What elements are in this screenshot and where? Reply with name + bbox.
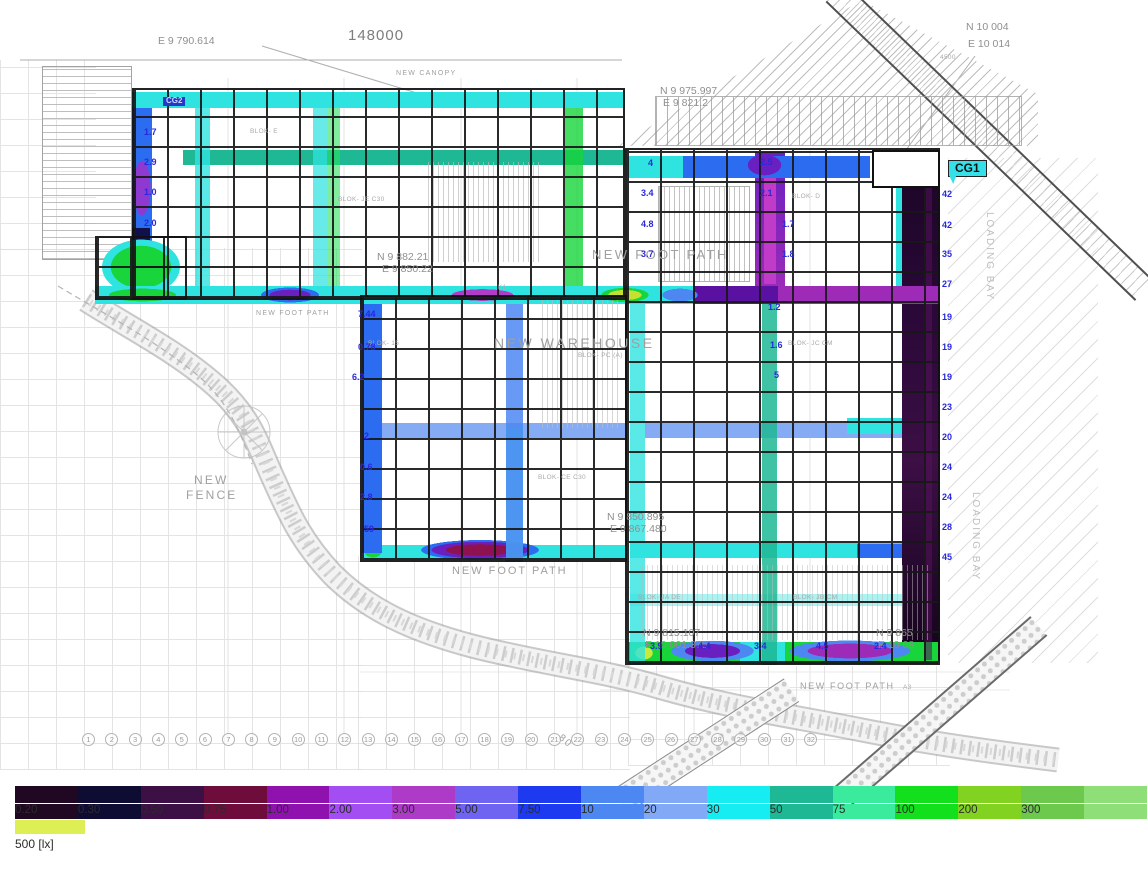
grid-axis-bubble: 17 xyxy=(455,733,468,746)
scale-segment xyxy=(329,786,392,803)
lux-value: 2.5 xyxy=(760,158,773,168)
lux-value: 45 xyxy=(942,553,952,563)
scale-segment xyxy=(770,786,833,803)
lux-value: 4.8 xyxy=(641,220,654,230)
lux-value: 19 xyxy=(942,313,952,323)
coordinate-label: N 9 865 xyxy=(876,628,913,640)
lux-value: 6.2 xyxy=(352,373,365,383)
block-label: BLOK- D xyxy=(792,193,820,200)
scale-segment xyxy=(518,786,581,803)
coordinate-label: E 9 790.614 xyxy=(158,36,215,48)
grid-axis-bubble: 20 xyxy=(525,733,538,746)
tree-symbol xyxy=(218,406,270,458)
loading-bay-label: LOADING BAY xyxy=(970,492,981,581)
scale-tick-label: 20 xyxy=(644,804,707,819)
cg2-badge: CG2 xyxy=(163,97,185,106)
scale-segment xyxy=(267,786,330,803)
area-label: NEW xyxy=(194,474,228,487)
lux-value: 2 xyxy=(364,432,369,442)
scale-segment xyxy=(15,786,78,803)
lux-value: 2.9 xyxy=(144,158,157,168)
scale-tick-label: 2.00 xyxy=(329,804,392,819)
grid-axis-bubble: 23 xyxy=(595,733,608,746)
scale-segment xyxy=(204,786,267,803)
block-label: BLOK- JA DE xyxy=(638,594,681,601)
lux-value: 1.7 xyxy=(782,220,795,230)
lux-value: 2.1 xyxy=(760,189,773,199)
lux-value: 42 xyxy=(942,221,952,231)
grid-axis-bubble: 14 xyxy=(385,733,398,746)
lux-value: 3.7 xyxy=(641,250,654,260)
lux-value: 1.6 xyxy=(770,341,783,351)
grid-axis-bubble: 24 xyxy=(618,733,631,746)
grid-axis-bubble: 10 xyxy=(292,733,305,746)
block-label: BLOK- E xyxy=(250,128,278,135)
scale-segment xyxy=(141,786,204,803)
lux-value: 27 xyxy=(942,280,952,290)
legend-500-swatch xyxy=(15,820,85,834)
block-label: A3 xyxy=(903,684,912,691)
warehouse-grid-upper-sw xyxy=(95,236,187,300)
lux-value: 3.9 xyxy=(650,642,663,652)
coordinate-label: N 9 850.895 xyxy=(607,512,664,524)
dimension-148000: 148000 xyxy=(348,28,404,45)
scale-segment xyxy=(895,786,958,803)
scale-tick-label: 30 xyxy=(707,804,770,819)
lux-value: 24 xyxy=(942,493,952,503)
coordinate-label: E 9 821.2 xyxy=(663,98,708,110)
lux-value: 35 xyxy=(942,250,952,260)
lux-value: 0.6 xyxy=(360,463,373,473)
lux-value: 2.4 xyxy=(874,642,887,652)
coordinate-label: N 10 004 xyxy=(966,22,1009,34)
lux-value: 1.7 xyxy=(144,128,157,138)
grid-axis-bubble: 11 xyxy=(315,733,328,746)
lux-value: 1.0 xyxy=(144,188,157,198)
scale-segment xyxy=(833,786,896,803)
grid-axis-bubble: 16 xyxy=(432,733,445,746)
lux-value: 2.0 xyxy=(144,219,157,229)
lux-value: 5 xyxy=(774,371,779,381)
scale-segment xyxy=(1084,786,1147,803)
block-label: BLOK- JC CM xyxy=(788,340,833,347)
coordinate-label: E 9 850.22 xyxy=(382,264,433,276)
scale-tick-label: 300 xyxy=(1021,804,1084,819)
lux-value: 1.8 xyxy=(782,250,795,260)
cg1-badge: CG1 xyxy=(948,160,987,177)
grid-axis-bubble: 28 xyxy=(711,733,724,746)
lux-value: 19 xyxy=(942,373,952,383)
scale-segment xyxy=(455,786,518,803)
lux-value: 0.78 xyxy=(358,343,376,353)
scale-segment xyxy=(1021,786,1084,803)
block-label: K1 xyxy=(498,284,507,291)
area-label: NEW FOOT PATH xyxy=(800,682,895,692)
coordinate-label: N 9 882.21 xyxy=(377,252,428,264)
grid-axis-bubble: 3 xyxy=(129,733,142,746)
scale-segment xyxy=(707,786,770,803)
lux-value: 2.8 xyxy=(360,493,373,503)
lux-value: 4.5 xyxy=(816,642,829,652)
scale-tick-label: 0.50 xyxy=(141,804,204,819)
scale-tick-label: 200 xyxy=(958,804,1021,819)
scale-segment xyxy=(958,786,1021,803)
grid-axis-bubble: 31 xyxy=(781,733,794,746)
loading-bay-label: LOADING BAY xyxy=(984,212,995,301)
block-label: BLOK- JB CM xyxy=(793,594,837,601)
scale-tick-label: 0.30 xyxy=(78,804,141,819)
lux-value: 20 xyxy=(942,433,952,443)
coordinate-label: N 9 815.107 xyxy=(643,628,700,640)
legend-500-label: 500 [lx] xyxy=(15,838,54,851)
scale-tick-label: 0.20 xyxy=(15,804,78,819)
grid-axis-bubble: 7 xyxy=(222,733,235,746)
area-label: NEW WAREHOUSE xyxy=(494,336,655,351)
area-label: NEW FOOT PATH xyxy=(592,248,729,262)
lux-value: 23 xyxy=(942,403,952,413)
grid-axis-bubble: 27 xyxy=(688,733,701,746)
area-label: FENCE xyxy=(186,489,237,502)
scale-segment xyxy=(78,786,141,803)
scale-tick-label: 100 xyxy=(895,804,958,819)
grid-axis-bubble: 6 xyxy=(199,733,212,746)
area-label: NEW FOOT PATH xyxy=(452,565,568,577)
grid-axis-bubble: 21 xyxy=(548,733,561,746)
lux-value: 59 xyxy=(364,525,374,535)
coordinate-label: E 9 867.480 xyxy=(610,524,667,536)
scale-tick-label: 75 xyxy=(833,804,896,819)
block-label: 4500 xyxy=(940,54,956,61)
scale-tick-label: 3.00 xyxy=(392,804,455,819)
scale-tick-label xyxy=(1084,804,1147,819)
lux-value: 19 xyxy=(942,343,952,353)
grid-axis-bubble: 26 xyxy=(665,733,678,746)
lux-value: 4 xyxy=(648,159,653,169)
lux-value: 7.44 xyxy=(358,310,376,320)
scale-segment xyxy=(392,786,455,803)
grid-axis-bubble: 8 xyxy=(245,733,258,746)
color-scale-labels: 0.200.300.500.751.002.003.005.007.501020… xyxy=(15,804,1147,819)
scale-tick-label: 7.50 xyxy=(518,804,581,819)
coordinate-label: E 10 014 xyxy=(968,39,1010,51)
lux-value: 3.4 xyxy=(754,642,767,652)
scale-tick-label: 10 xyxy=(581,804,644,819)
scale-tick-label: 5.00 xyxy=(455,804,518,819)
block-label: BLOK- PC (A) xyxy=(578,352,623,359)
scale-tick-label: 1.00 xyxy=(267,804,330,819)
cg1-room xyxy=(872,150,940,188)
area-label: NEW CANOPY xyxy=(396,70,456,78)
scale-tick-label: 50 xyxy=(770,804,833,819)
block-label: BLOK- JE C30 xyxy=(338,196,385,203)
color-scale-bar xyxy=(15,786,1147,803)
grid-axis-bubble: 30 xyxy=(758,733,771,746)
lux-value: 3.4 xyxy=(641,189,654,199)
lux-value: 1.2 xyxy=(768,303,781,313)
block-label: BLOK- CE C30 xyxy=(538,474,586,481)
lux-value: 24 xyxy=(942,463,952,473)
area-label: NEW FOOT PATH xyxy=(256,310,330,318)
grid-axis-bubble: 1 xyxy=(82,733,95,746)
coordinate-label: N 9 975.997 xyxy=(660,86,717,98)
grid-axis-bubble: 13 xyxy=(362,733,375,746)
dock-modules xyxy=(655,96,1022,146)
grid-axis-bubble: 18 xyxy=(478,733,491,746)
warehouse-grid-upper xyxy=(132,88,625,300)
grid-axis-bubble: 4 xyxy=(152,733,165,746)
scale-segment xyxy=(644,786,707,803)
lux-value: 42 xyxy=(942,190,952,200)
lux-value: 28 xyxy=(942,523,952,533)
lux-value: 4.4 xyxy=(698,642,711,652)
scale-tick-label: 0.75 xyxy=(204,804,267,819)
lighting-calculation-plan: 148000 E 9 790.614N 10 004E 10 014N 9 97… xyxy=(0,0,1148,878)
scale-segment xyxy=(581,786,644,803)
